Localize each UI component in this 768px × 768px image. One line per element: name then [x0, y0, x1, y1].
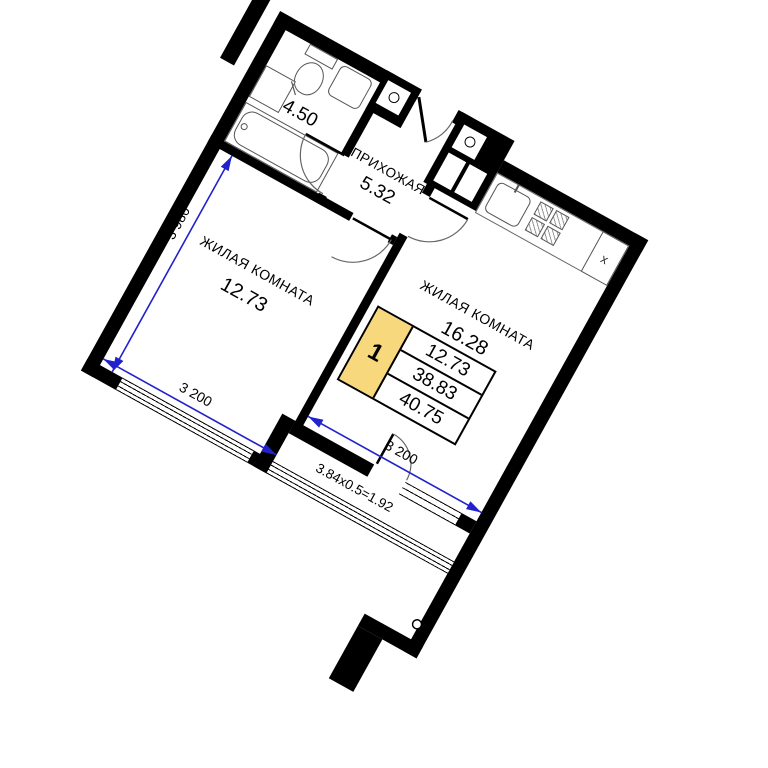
pipe-marker-icon: [411, 618, 423, 630]
dim-line-room1-width: [103, 359, 276, 455]
dim-arrow-icon: [221, 154, 236, 171]
floorplan-scene: x: [0, 0, 768, 768]
dim-arrow-icon: [466, 501, 483, 516]
dim-line-room1-depth: [112, 156, 232, 372]
room1-door-leaf: [353, 218, 391, 239]
apartment-floorplan: x: [0, 0, 711, 732]
bathroom-door-leaf: [306, 134, 344, 155]
entrance-door-arc: [426, 114, 453, 148]
entrance-door-leaf: [401, 97, 443, 142]
washer-mark-icon: [287, 81, 301, 95]
bathroom-door-arc: [285, 134, 345, 194]
room1-door-arc: [332, 218, 392, 278]
room2-door-arc: [408, 198, 468, 258]
dim-arrow-icon: [306, 413, 323, 428]
room2-door-leaf: [429, 198, 467, 219]
dim-arrow-icon: [261, 444, 278, 459]
